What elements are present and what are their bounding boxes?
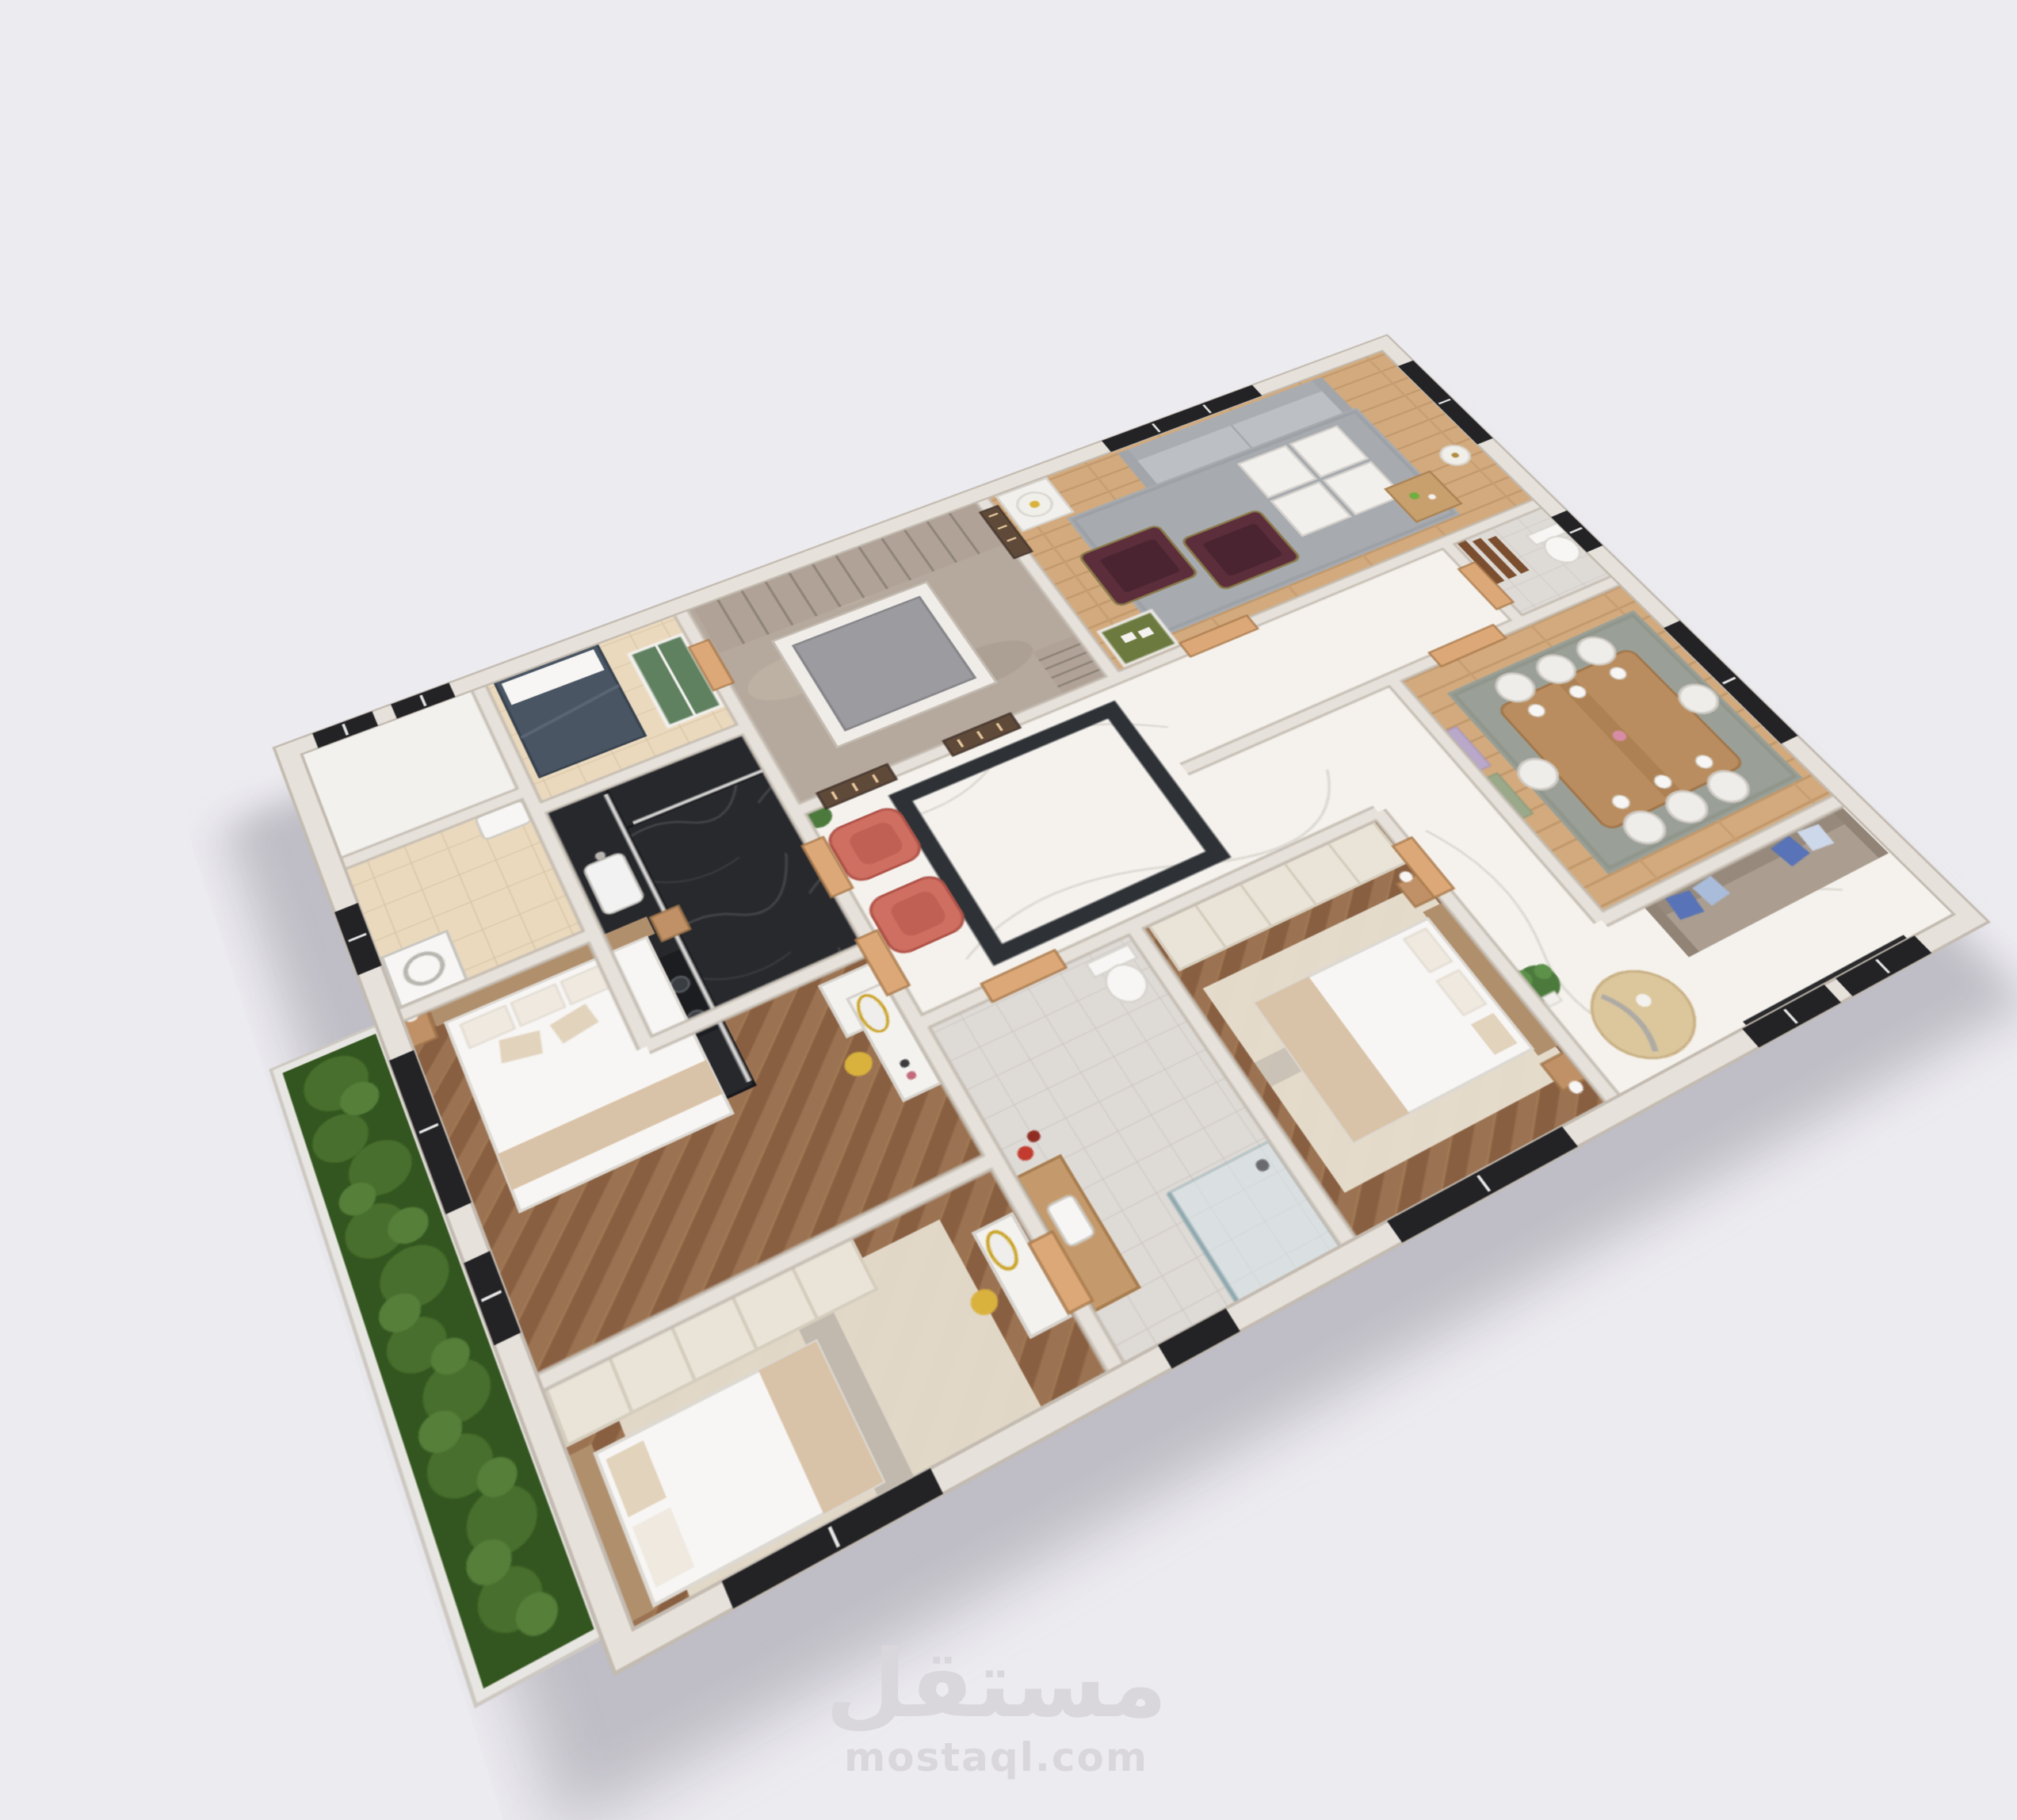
floor-plan-svg	[163, 311, 2017, 1820]
floor-plan-render-canvas: مستقل mostaql.com	[0, 0, 2017, 1820]
isometric-floor-plan-scene	[163, 311, 2017, 1820]
